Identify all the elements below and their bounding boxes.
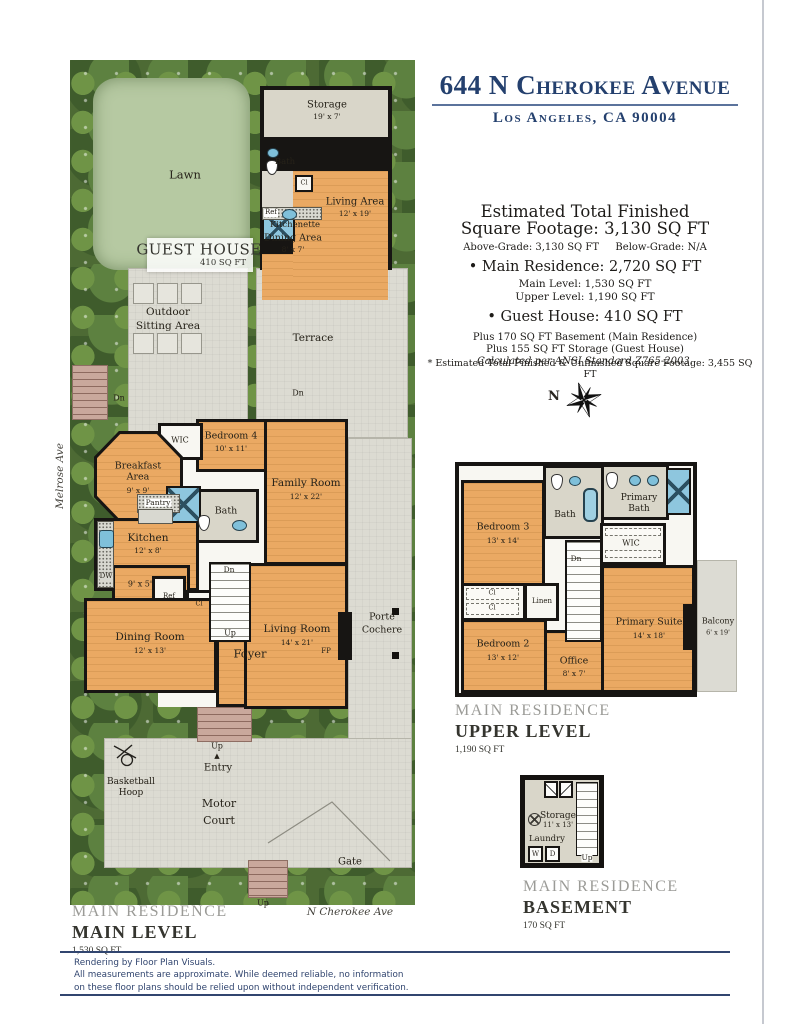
bedroom2-dims: 13' x 12' <box>487 654 519 662</box>
basement-storage-label: Storage <box>540 811 576 821</box>
family-room-dims: 12' x 22' <box>290 493 322 501</box>
kitchen-label: Kitchen <box>127 533 168 545</box>
gh-storage-dims: 19' x 7' <box>313 113 340 121</box>
summary-heading-1: Estimated Total Finished <box>435 203 735 220</box>
main-section-title: MAIN LEVEL <box>72 922 228 943</box>
basketball-hoop-icon <box>112 743 140 769</box>
footer-line-1: Rendering by Floor Plan Visuals. <box>74 957 409 969</box>
bedroom3-dims: 13' x 14' <box>487 537 519 545</box>
side-driveway <box>348 438 412 740</box>
page-edge-rule <box>762 0 764 1024</box>
upper-bath-label: Bath <box>554 510 575 520</box>
basement-section-title: BASEMENT <box>523 897 679 918</box>
bedroom3-label: Bedroom 3 <box>477 523 530 534</box>
page-subtitle: Los Angeles, CA 90004 <box>428 110 742 127</box>
stairs-dn-label: Dn <box>224 566 235 574</box>
patio-tile <box>133 283 154 304</box>
basement-up-label: Up <box>581 854 592 862</box>
stove-icon <box>138 509 173 524</box>
garden-dn-label: Dn <box>113 395 125 404</box>
balcony-label: Balcony <box>702 618 734 627</box>
summary-guest-house: • Guest House: 410 SQ FT <box>435 309 735 325</box>
primary-bath-label-2: Bath <box>628 504 649 514</box>
summary-upper-level: Upper Level: 1,190 SQ FT <box>435 291 735 303</box>
breakfast-dims: 9' x 9' <box>127 487 150 495</box>
main-level-section: MAIN RESIDENCE MAIN LEVEL 1,530 SQ FT <box>72 903 228 956</box>
upper-dn-label: Dn <box>571 555 582 563</box>
bedroom2-label: Bedroom 2 <box>477 640 530 651</box>
living-room-dims: 14' x 21' <box>281 639 313 647</box>
linen-label: Linen <box>532 598 552 606</box>
gh-dining-dims: 8' x 7' <box>282 246 305 254</box>
page-title: 644 N Cherokee Avenue <box>428 70 742 101</box>
upper-bath-sink-icon <box>569 476 581 486</box>
dw-label: DW <box>100 573 113 581</box>
street-melrose-label: Melrose Ave <box>54 436 66 516</box>
foyer-label: Foyer <box>233 648 266 661</box>
washer-box: W <box>528 846 543 862</box>
basement-section-eyebrow: MAIN RESIDENCE <box>523 878 679 896</box>
outdoor-sitting-label-2: Sitting Area <box>136 321 200 333</box>
upper-section-title: UPPER LEVEL <box>455 721 611 742</box>
summary-footnote: * Estimated Total Finished & Unfinished … <box>425 358 755 380</box>
basement-stairs <box>576 782 598 856</box>
porte-label-2: Cochere <box>362 626 402 637</box>
patio-tile <box>133 333 154 354</box>
kitchen-sink-icon <box>99 530 114 548</box>
basement-section-sqft: 170 SQ FT <box>523 921 679 931</box>
footer-rule-top <box>60 951 730 953</box>
gh-living-label: Living Area <box>326 196 385 207</box>
outdoor-sitting-label-1: Outdoor <box>146 307 190 319</box>
cl-label: Cl <box>488 604 495 611</box>
patio-tile <box>157 283 178 304</box>
primary-bath-label-1: Primary <box>621 493 658 503</box>
stairs-up-label: Up <box>224 630 236 639</box>
garden-steps <box>72 365 108 420</box>
guest-house-sqft: 410 SQ FT <box>200 259 246 269</box>
upper-level-plan: Bedroom 3 13' x 14' Bath Primary Bath WI… <box>455 462 697 697</box>
closet-label: Cl <box>195 600 202 607</box>
summary-plus-basement: Plus 170 SQ FT Basement (Main Residence) <box>435 332 735 343</box>
primary-sink-icon <box>647 475 659 486</box>
gh-storage-label: Storage <box>307 99 347 110</box>
below-grade: Below-Grade: N/A <box>615 242 706 253</box>
porte-cochere-post <box>392 652 399 659</box>
summary-heading-2: Square Footage: 3,130 SQ FT <box>435 220 735 237</box>
main-bath-label: Bath <box>215 507 238 518</box>
living-room <box>244 563 348 709</box>
title-rule <box>432 104 738 106</box>
upper-wic-label: WIC <box>622 540 640 549</box>
basement-cabinet <box>559 781 573 798</box>
primary-suite-dims: 14' x 18' <box>633 632 665 640</box>
upper-section-sqft: 1,190 SQ FT <box>455 745 611 755</box>
dryer-box: D <box>545 846 560 862</box>
street-cherokee-label: N Cherokee Ave <box>305 906 395 918</box>
terrace-label: Terrace <box>293 333 334 345</box>
footer-rule-bottom <box>60 994 730 996</box>
primary-suite-label: Primary Suite <box>616 618 683 629</box>
above-grade: Above-Grade: 3,130 SQ FT <box>463 242 599 253</box>
summary-main-level: Main Level: 1,530 SQ FT <box>435 278 735 290</box>
basement-section: MAIN RESIDENCE BASEMENT 170 SQ FT <box>523 878 679 931</box>
summary-plus-storage: Plus 155 SQ FT Storage (Guest House) <box>435 344 735 355</box>
gh-living-dims: 12' x 19' <box>339 210 371 218</box>
gh-bath-room <box>262 171 295 212</box>
primary-sink-icon <box>629 475 641 486</box>
site-plan: Storage 19' x 7' Bath Cl Living Area 12'… <box>70 60 415 905</box>
basketball-label-1: Basketball <box>107 777 155 787</box>
patio-tile <box>157 333 178 354</box>
office-dims: 8' x 7' <box>563 670 586 678</box>
fp-label: FP <box>321 648 331 656</box>
gh-kitchen-sink-icon <box>282 209 297 220</box>
cl-label: Cl <box>488 589 495 596</box>
dining-room-dims: 12' x 13' <box>134 647 166 655</box>
upper-section-eyebrow: MAIN RESIDENCE <box>455 702 611 720</box>
wic-shelf <box>605 528 661 536</box>
wic-label: WIC <box>171 437 189 446</box>
summary-grade-line: Above-Grade: 3,130 SQ FT Below-Grade: N/… <box>435 242 735 253</box>
dining-room-label: Dining Room <box>115 632 184 644</box>
balcony-dims: 6' x 19' <box>706 629 730 636</box>
gate-icon <box>260 795 400 867</box>
floor-plan-page: Storage 19' x 7' Bath Cl Living Area 12'… <box>0 0 791 1024</box>
upper-bath-tub-icon <box>583 488 598 522</box>
sqft-summary: Estimated Total Finished Square Footage:… <box>435 203 735 367</box>
main-section-eyebrow: MAIN RESIDENCE <box>72 903 228 921</box>
fireplace <box>338 612 352 660</box>
kitchen-dims: 12' x 8' <box>134 547 161 555</box>
terrace-dn-label: Dn <box>292 390 304 399</box>
wic-shelf <box>605 550 661 558</box>
gh-closet-label: Cl <box>300 179 307 186</box>
gh-dining-label: Dining Area <box>264 234 322 245</box>
basement-plan: Storage 11' x 13' Laundry W D Up <box>520 775 604 868</box>
entry-arrow-icon: ▲ <box>214 753 219 761</box>
motor-court-label-1: Motor <box>202 798 236 810</box>
entry-label: Entry <box>204 762 232 773</box>
compass-rose-icon <box>564 380 604 420</box>
footer-line-3: on these floor plans should be relied up… <box>74 982 409 994</box>
pantry-label: Pantry <box>145 499 172 507</box>
motor-court-label-2: Court <box>203 815 235 827</box>
nook-dims-label: 9' x 5' <box>128 581 152 590</box>
footer-disclaimer: Rendering by Floor Plan Visuals. All mea… <box>74 957 409 994</box>
street-steps-up-label: Up <box>257 900 269 909</box>
guest-house-title: GUEST HOUSE <box>136 242 261 259</box>
patio-tile <box>181 283 202 304</box>
summary-main-residence: • Main Residence: 2,720 SQ FT <box>435 259 735 275</box>
lawn-label: Lawn <box>169 169 201 182</box>
living-room-label: Living Room <box>264 624 331 636</box>
footer-line-2: All measurements are approximate. While … <box>74 969 409 981</box>
main-bath-sink-icon <box>232 520 247 531</box>
breakfast-label: Breakfast Area <box>108 461 168 482</box>
balcony-door <box>683 604 697 650</box>
bedroom4-dims: 10' x 11' <box>215 445 247 453</box>
office-label: Office <box>560 657 589 668</box>
porte-label-1: Porté <box>369 613 395 624</box>
compass-north-label: N <box>548 389 560 404</box>
primary-suite-room <box>601 565 695 693</box>
upper-level-section: MAIN RESIDENCE UPPER LEVEL 1,190 SQ FT <box>455 702 611 755</box>
gh-kitchenette-label: Kitchenette <box>270 221 320 231</box>
patio-tile <box>181 333 202 354</box>
entry-up-label: Up <box>211 743 223 752</box>
basketball-label-2: Hoop <box>119 788 143 798</box>
laundry-label: Laundry <box>529 835 565 845</box>
primary-shower <box>666 468 691 515</box>
family-room-label: Family Room <box>271 478 340 490</box>
gh-ref-label: Ref <box>264 209 278 217</box>
basement-cabinet <box>544 781 558 798</box>
gh-bath-label: Bath <box>275 158 295 168</box>
bedroom4-label: Bedroom 4 <box>205 432 258 443</box>
ref-label: Ref <box>163 593 175 601</box>
basement-storage-dims: 11' x 13' <box>543 822 573 830</box>
